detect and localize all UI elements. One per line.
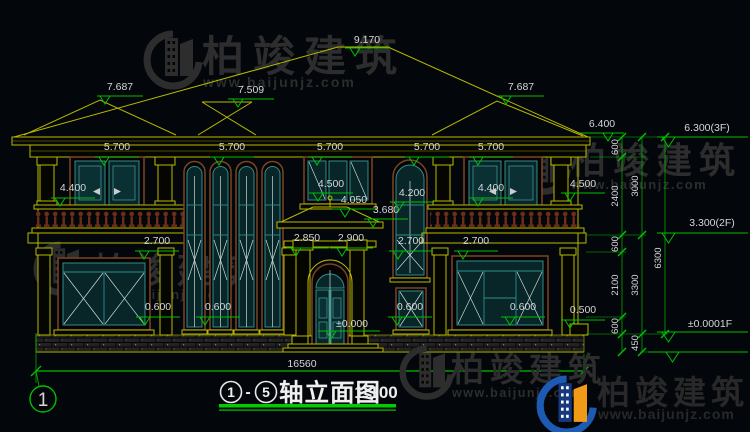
watermark-brand-text: 柏竣建筑	[570, 140, 742, 181]
elevation-value: 0.500	[570, 304, 596, 316]
entry-step-1	[288, 344, 378, 348]
elevation-value: 4.500	[318, 178, 344, 190]
watermark-brand-text: 柏竣建筑	[451, 351, 607, 388]
elevation-value: 0.600	[145, 301, 171, 313]
chain-dimension-value: 2100	[610, 274, 621, 295]
elevation-value: 7.687	[107, 81, 133, 93]
elevation-value: 2.850	[294, 232, 320, 244]
elevation-value: 3.680	[373, 204, 399, 216]
chain-dimension-value: 3300	[630, 274, 641, 295]
arched-window	[260, 162, 285, 335]
watermark-url-text: www.baijunjz.com	[597, 406, 735, 422]
elevation-value: 4.400	[60, 182, 86, 194]
watermark-url-text: www.baijunjz.com	[202, 74, 356, 90]
elevation-value: 2.700	[144, 235, 170, 247]
elevation-value: 2.900	[338, 232, 364, 244]
elevation-value: 9.170	[354, 34, 380, 46]
elevation-value: 6.300(3F)	[684, 122, 730, 134]
cad-viewport: 柏竣建筑www.baijunjz.com柏竣建筑www.baijunjz.com…	[0, 0, 750, 432]
elevation-value: 4.050	[341, 194, 367, 206]
elevation-value: ±0.000	[336, 318, 368, 330]
left-balcony-balustrade	[32, 205, 188, 233]
elevation-value: 3.300(2F)	[689, 217, 735, 229]
elevation-value: 7.509	[238, 84, 264, 96]
elevation-value: 5.700	[104, 141, 130, 153]
title-scale: 1:100	[354, 383, 397, 402]
chain-dimension-value: 3000	[630, 175, 641, 196]
elevation-value: 5.700	[317, 141, 343, 153]
elevation-value: 0.600	[510, 301, 536, 313]
elevation-value: 5.700	[478, 141, 504, 153]
total-width-dimension: 16560	[287, 358, 316, 370]
chain-dimension-value: 450	[630, 335, 641, 351]
title-axis-end: 5	[262, 384, 270, 400]
chain-dimension-value: 600	[610, 318, 621, 334]
chain-dimension-value: 600	[610, 139, 621, 155]
entry-step-2	[283, 348, 383, 352]
chain-dimension-value: 2400	[610, 185, 621, 206]
tall-arched-window	[390, 160, 430, 282]
title-underline-thick	[219, 404, 396, 408]
elevation-value: 4.500	[570, 178, 596, 190]
title-axis-start: 1	[227, 384, 235, 400]
elevation-sheet: 柏竣建筑www.baijunjz.com柏竣建筑www.baijunjz.com…	[0, 0, 750, 432]
elevation-value: 4.400	[478, 182, 504, 194]
elevation-value: 0.600	[205, 301, 231, 313]
axis-number: 1	[38, 390, 49, 411]
arched-window	[182, 162, 207, 335]
elevation-value: 0.600	[397, 301, 423, 313]
elevation-value: 2.700	[463, 235, 489, 247]
title-separator: -	[245, 384, 250, 401]
elevation-value: 5.700	[414, 141, 440, 153]
right-first-floor-window	[448, 256, 552, 335]
elevation-value: 7.687	[508, 81, 534, 93]
chain-dimension-value: 6300	[653, 247, 664, 268]
elevation-value: 5.700	[219, 141, 245, 153]
arched-window	[234, 162, 259, 335]
chain-dimension-value: 600	[610, 236, 621, 252]
right-balcony-balustrade	[426, 205, 584, 233]
corner-footing	[570, 324, 588, 335]
elevation-value: 2.700	[398, 235, 424, 247]
elevation-value: 4.200	[399, 187, 425, 199]
elevation-value: 6.400	[589, 118, 615, 130]
left-first-floor-window	[54, 258, 154, 335]
elevation-value: ±0.0001F	[688, 318, 732, 330]
title-underline-thin	[219, 410, 396, 411]
